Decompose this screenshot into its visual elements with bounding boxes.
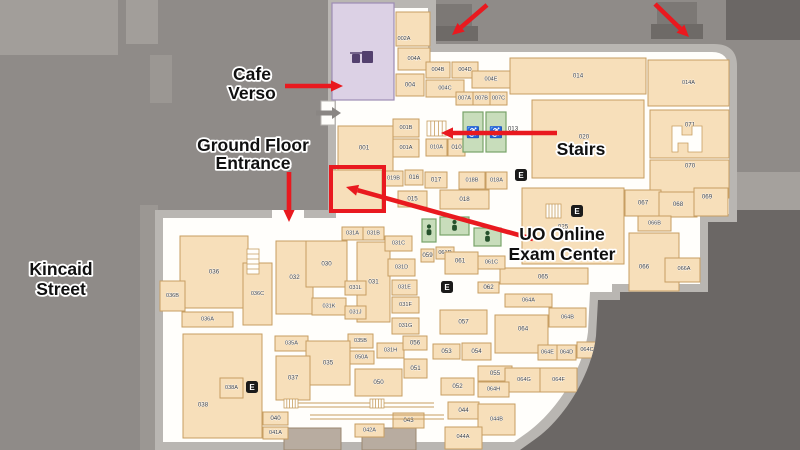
annotation-ground-floor-entrance: Entrance (216, 153, 291, 173)
room-number: 018B (465, 178, 478, 184)
room-number: 038 (198, 402, 209, 409)
room-number: 036C (251, 291, 264, 297)
annotation-cafe-verso: Verso (228, 83, 276, 103)
room-number: 031E (398, 285, 411, 291)
room-number: 037 (288, 375, 299, 382)
room-number: 036B (166, 293, 179, 299)
annotation-kincaid-street: Kincaid (29, 259, 92, 279)
room-number: 031L (349, 285, 361, 291)
room-number: 004 (405, 82, 416, 89)
room-number: 067 (638, 200, 649, 207)
elevator-letter: E (444, 283, 450, 292)
person-icon (452, 225, 457, 231)
room-number: 066 (639, 264, 650, 271)
room-number: 007B (475, 96, 488, 102)
room-number: 010 (451, 144, 462, 151)
stairs-icon (370, 399, 384, 408)
cafe-food-icon (362, 51, 373, 63)
room-number: 007A (458, 96, 471, 102)
sidewalk-block (0, 0, 118, 55)
room-number: 004D (458, 67, 471, 73)
room-number: 031B (367, 231, 380, 237)
room-number: 068 (673, 201, 684, 208)
room-number: 064A (522, 298, 535, 304)
room-number: 004E (484, 77, 497, 83)
room-number: 070 (685, 163, 696, 170)
room-number: 032 (289, 274, 300, 281)
room-number: 015 (407, 196, 418, 203)
room-number: 007C (492, 96, 505, 102)
room-number: 035B (354, 338, 367, 344)
room-number: 002A (397, 36, 410, 42)
annotation-uo-online-exam-center: UO Online (519, 224, 605, 244)
room-069 (694, 188, 728, 216)
room-number: 043 (403, 417, 414, 424)
room-number: 050A (355, 355, 368, 361)
person-icon (452, 220, 456, 224)
room-number: 017 (431, 177, 442, 184)
room-number: 044A (456, 434, 469, 440)
room-number: 052 (452, 383, 463, 390)
room-number: 064C (580, 347, 593, 353)
stairs-icon (247, 249, 259, 274)
room-number: 064F (552, 377, 565, 383)
room-number: 031K (322, 304, 335, 310)
room-number: 010A (430, 145, 443, 151)
room-number: 041A (269, 430, 282, 436)
room-number: 050 (373, 379, 384, 386)
person-icon (485, 236, 490, 242)
room-number: 038A (225, 385, 238, 391)
room-number: 061 (455, 258, 466, 265)
sidewalk-strip (150, 55, 172, 103)
room-number: 004B (431, 67, 444, 73)
annotation-kincaid-street: Street (36, 279, 86, 299)
annotation-uo-online-exam-center: Exam Center (509, 244, 616, 264)
room-number: 044B (490, 417, 503, 423)
room-number: 014 (573, 73, 584, 80)
room-number: 055 (490, 370, 501, 377)
room-number: 018 (459, 196, 470, 203)
adjacent-building (726, 0, 800, 40)
room-number: 051 (410, 365, 421, 372)
room-number: 064G (517, 377, 531, 383)
room-number: 064 (518, 326, 529, 333)
room-number: 066A (677, 266, 690, 272)
room-number: 031F (399, 302, 412, 308)
room-number: 066B (648, 221, 661, 227)
room-number: 053 (441, 348, 452, 355)
sidewalk-block (126, 0, 158, 44)
unlabeled-room (284, 428, 341, 450)
room-number: 061C (485, 260, 498, 266)
room-number: 035 (323, 360, 334, 367)
room-number: 001B (399, 125, 412, 131)
room-number: 031H (384, 348, 397, 354)
room-number: 031J (349, 310, 361, 316)
floor-plan-map: 002A004A004004B004C004D004E007A007B007C0… (0, 0, 800, 450)
room-number: 056 (410, 340, 421, 347)
room-number: 004C (438, 86, 451, 92)
cafe-cup-icon (352, 54, 360, 63)
room-number: 059 (422, 252, 433, 259)
person-icon (427, 224, 431, 228)
floor-plan-page: 002A004A004004B004C004D004E007A007B007C0… (0, 0, 800, 450)
room-number: 004A (407, 56, 420, 62)
room-number: 031G (399, 323, 413, 329)
annotation-stairs: Stairs (557, 139, 606, 159)
room-number: 019B (387, 176, 400, 182)
room-number: 031A (346, 231, 359, 237)
room-number: 014A (682, 80, 695, 86)
room-number: 065 (538, 274, 549, 281)
room-number: 001 (359, 145, 370, 152)
stairs-icon (546, 204, 561, 218)
elevator-letter: E (518, 171, 524, 180)
stairs-icon (284, 399, 298, 408)
room-number: 018A (490, 178, 503, 184)
annotation-cafe-verso: Cafe (233, 64, 271, 84)
room-number: 031D (395, 265, 408, 271)
room-number: 030 (321, 261, 332, 268)
person-icon (485, 231, 489, 235)
annotation-ground-floor-entrance: Ground Floor (197, 135, 309, 155)
room-number: 062 (483, 284, 494, 291)
room-number: 042A (363, 428, 376, 434)
room-number: 031C (392, 241, 405, 247)
room-number: 031 (368, 279, 379, 286)
room-number: 064H (487, 387, 500, 393)
room-number: 064D (560, 350, 573, 356)
room-number: 064B (561, 315, 574, 321)
elevator-letter: E (574, 207, 580, 216)
room-number: 054 (471, 348, 482, 355)
room-number: 001A (399, 145, 412, 151)
person-icon (427, 229, 432, 235)
room-number: 036 (209, 269, 220, 276)
room-number: 057 (458, 319, 469, 326)
room-number: 064E (541, 350, 554, 356)
room-number: 035A (285, 341, 298, 347)
elevator-letter: E (249, 383, 255, 392)
room-number: 069 (702, 194, 713, 201)
room-number: 036A (201, 317, 214, 323)
room-number: 040 (270, 415, 281, 422)
sidewalk-elbow (737, 172, 800, 212)
room-number: 044 (458, 407, 469, 414)
room-number: 016 (409, 174, 420, 181)
